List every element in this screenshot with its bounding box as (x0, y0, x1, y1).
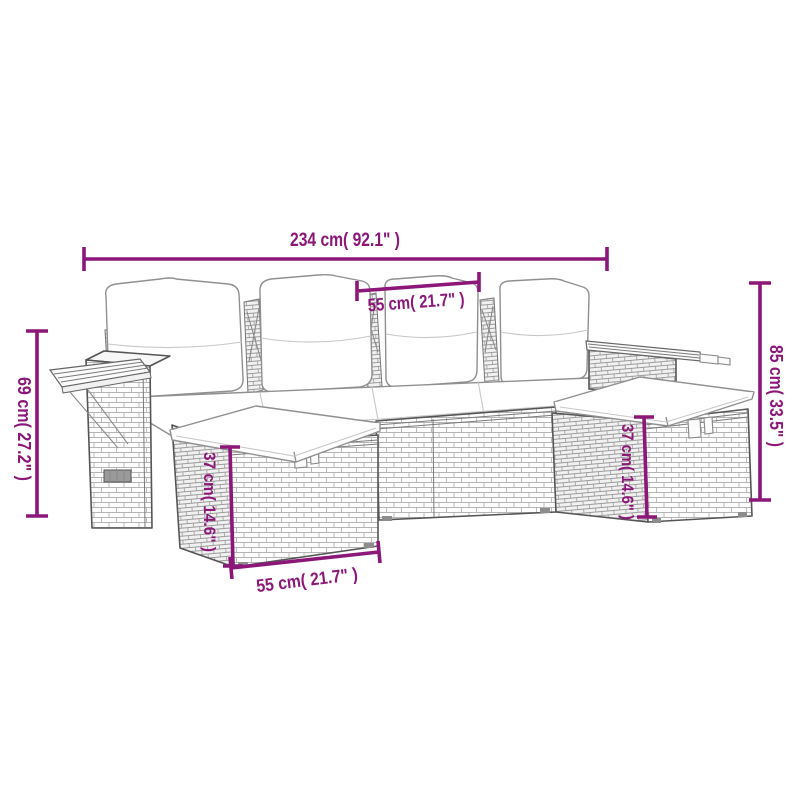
sofa-front-panel (376, 407, 556, 521)
product-diagram-svg: 234 cm( 92.1" ) 55 cm( 21.7" ) 69 cm( 27… (0, 0, 800, 800)
sofa-foot (540, 508, 550, 513)
dimension-label-total-width: 234 cm( 92.1" ) (290, 230, 400, 251)
dimension-total-width: 234 cm( 92.1" ) (84, 230, 607, 271)
dimension-label-ottoman-width: 55 cm( 21.7" ) (255, 564, 359, 596)
dimension-diagram-canvas: 234 cm( 92.1" ) 55 cm( 21.7" ) 69 cm( 27… (0, 0, 800, 800)
dimension-label-ottoman-height-right: 37 cm( 14.6" ) (618, 424, 637, 520)
dimension-label-ottoman-height-left: 37 cm( 14.6" ) (200, 452, 219, 552)
dimension-label-tray-height: 69 cm( 27.2" ) (14, 377, 34, 481)
back-cushion-2 (260, 275, 372, 392)
sofa-illustration (50, 275, 754, 567)
front-panel-face (376, 407, 556, 520)
ottoman-foot (364, 543, 374, 548)
ottoman-foot (738, 512, 747, 517)
dimension-label-back-height: 85 cm( 33.5" ) (766, 345, 786, 447)
back-cushions (106, 275, 589, 398)
tray-clip (718, 357, 730, 365)
back-cushion-4 (500, 279, 589, 384)
dimension-back-height: 85 cm( 33.5" ) (749, 283, 786, 500)
ottoman-clip (688, 419, 701, 438)
dimension-tray-height: 69 cm( 27.2" ) (14, 331, 48, 516)
right-ottoman (552, 377, 754, 523)
ottoman-clip (704, 417, 713, 434)
sofa-foot (382, 516, 392, 521)
tray-clip (700, 354, 718, 364)
